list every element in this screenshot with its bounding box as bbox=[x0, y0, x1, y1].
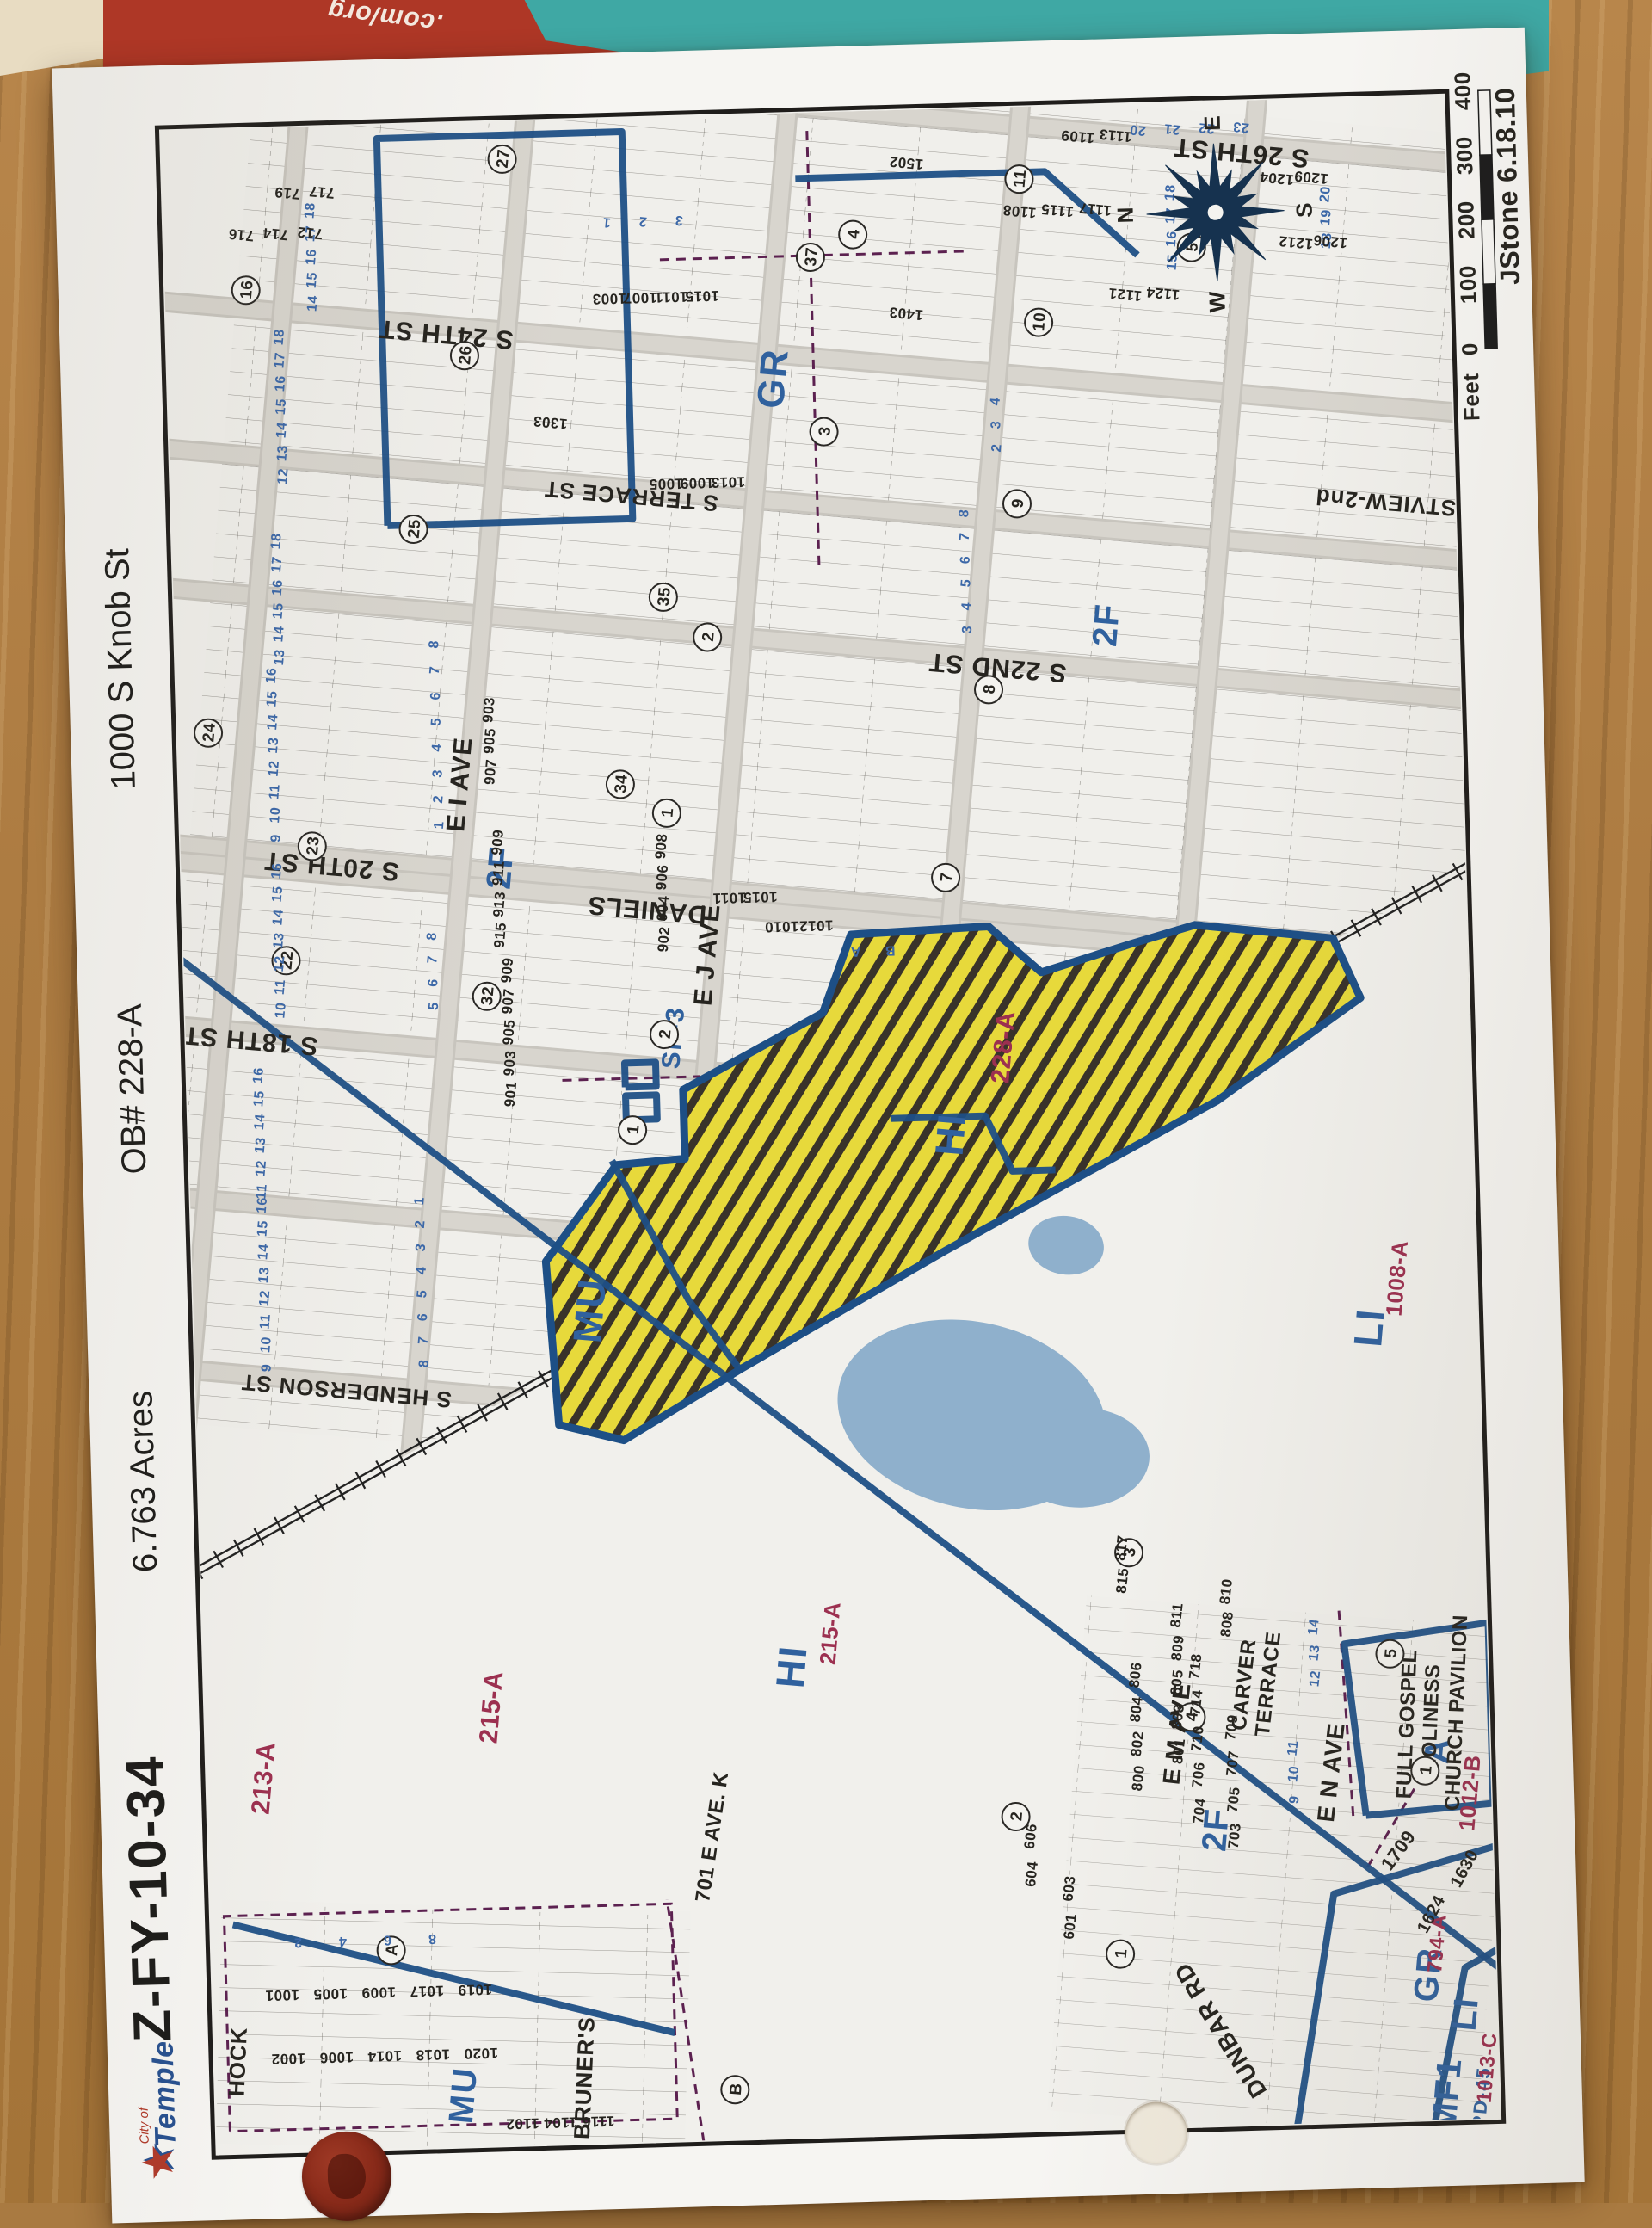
house-number: 1013 bbox=[711, 473, 745, 491]
lot-number: 2 bbox=[413, 1219, 428, 1229]
house-number: 901 bbox=[502, 1081, 520, 1108]
lot-number: 7 bbox=[425, 955, 441, 965]
house-number: 1108 bbox=[1002, 201, 1038, 221]
house-number: 811 bbox=[1168, 1602, 1187, 1628]
lot-number: 13 bbox=[271, 932, 287, 949]
block-number: 1 bbox=[658, 807, 677, 818]
house-number: 604 bbox=[1022, 1861, 1041, 1888]
lot-number: 9 bbox=[268, 834, 284, 843]
lot-number: 15 bbox=[251, 1090, 268, 1108]
block-number: 3 bbox=[816, 426, 835, 437]
house-number: 915 bbox=[491, 922, 509, 948]
lot-number: 16 bbox=[263, 667, 280, 684]
zoning-label: MU bbox=[442, 2065, 484, 2126]
lot-number: 14 bbox=[270, 909, 287, 926]
house-number: 1018 bbox=[416, 2046, 450, 2063]
house-number: 1006 bbox=[319, 2049, 354, 2066]
house-number: 1204 bbox=[1259, 169, 1294, 188]
lot-number: 11 bbox=[273, 978, 288, 995]
block-number: B bbox=[727, 2083, 746, 2096]
house-number: 902 bbox=[655, 926, 673, 953]
scale-tick: 200 bbox=[1452, 201, 1479, 240]
compass-letter: E bbox=[1199, 115, 1224, 132]
lot-number: 14 bbox=[252, 1114, 268, 1131]
house-number: 905 bbox=[480, 727, 498, 754]
lot-number: 16 bbox=[269, 862, 286, 879]
lot-number: 7 bbox=[428, 665, 443, 675]
lot-number: 10 bbox=[268, 806, 284, 824]
house-number: 909 bbox=[498, 957, 516, 984]
lot-number: 12 bbox=[272, 955, 288, 972]
house-number: 704 bbox=[1190, 1797, 1209, 1824]
block-number: 4 bbox=[845, 229, 864, 240]
tract-label: 215-A bbox=[815, 1601, 846, 1666]
house-number: 1212 bbox=[1278, 232, 1313, 252]
house-number: 909 bbox=[489, 829, 507, 855]
lot-number: 8 bbox=[427, 639, 442, 649]
house-number: 903 bbox=[501, 1050, 519, 1077]
lot-number: 13 bbox=[266, 737, 282, 754]
house-number: 714 bbox=[262, 225, 289, 244]
lot-number: 9 bbox=[259, 1363, 274, 1373]
street-label: HOCK bbox=[224, 2027, 252, 2097]
house-number: 1113 bbox=[1099, 126, 1133, 145]
map-landscape: ★ City of Temple Z-FY-10-34 6.763 Acres … bbox=[52, 34, 1578, 2213]
scale-tick: 100 bbox=[1454, 265, 1481, 305]
lot-number: 11 bbox=[257, 1313, 273, 1330]
lot-number: 13 bbox=[274, 445, 291, 462]
house-number: 800 bbox=[1129, 1764, 1148, 1792]
lot-number: 12 bbox=[1307, 1669, 1323, 1688]
house-number: 1303 bbox=[533, 413, 568, 433]
house-number: 1009 bbox=[361, 1984, 396, 2001]
house-number: 716 bbox=[227, 225, 255, 244]
house-number: 707 bbox=[1223, 1750, 1242, 1777]
red-paper-text: .com/org bbox=[325, 0, 444, 38]
house-number: 907 bbox=[499, 988, 517, 1015]
house-number: 1109 bbox=[1060, 127, 1095, 146]
lot-number: 14 bbox=[274, 422, 291, 439]
lot-number: 12 bbox=[275, 468, 292, 485]
block-number: 5 bbox=[1382, 1648, 1401, 1659]
zoning-label: HI bbox=[767, 1643, 816, 1689]
lot-number: 15 bbox=[264, 690, 280, 707]
house-number: 1005 bbox=[313, 1985, 348, 2003]
lot-number: 16 bbox=[1164, 231, 1180, 248]
lot-number: 16 bbox=[270, 579, 287, 596]
house-number: 908 bbox=[652, 833, 670, 860]
lot-number: 16 bbox=[273, 375, 289, 392]
house-number: 1010 bbox=[764, 918, 798, 935]
lot-number: 14 bbox=[305, 295, 321, 312]
compass-letter: W bbox=[1204, 291, 1230, 313]
lot-number: 13 bbox=[253, 1137, 269, 1154]
block-number: 16 bbox=[237, 280, 257, 300]
house-number: 718 bbox=[1186, 1652, 1205, 1680]
house-number: 719 bbox=[274, 184, 301, 203]
lot-number: 15 bbox=[305, 272, 321, 289]
lot-number: 19 bbox=[1318, 209, 1335, 226]
map-content: S HENDERSON STS 18TH STS 20TH STS 22ND S… bbox=[102, 34, 1577, 2180]
zoning-label: HI bbox=[926, 1111, 974, 1157]
lot-number: 14 bbox=[1306, 1618, 1322, 1636]
house-number: 1206 bbox=[1312, 231, 1347, 251]
house-number: 706 bbox=[1189, 1761, 1208, 1788]
lot-number: 1 bbox=[602, 214, 612, 230]
lot-number: 10 bbox=[273, 1002, 289, 1019]
house-number: 606 bbox=[1021, 1823, 1040, 1850]
lot-number: 14 bbox=[256, 1244, 272, 1261]
railroad-tick bbox=[152, 1584, 162, 1602]
block-number: 7 bbox=[938, 872, 957, 883]
house-number: 717 bbox=[308, 182, 336, 201]
house-number: 1014 bbox=[367, 2047, 402, 2064]
house-number: 817 bbox=[1112, 1534, 1131, 1562]
block-number: 34 bbox=[612, 774, 632, 794]
zoning-label: MU bbox=[564, 1276, 614, 1345]
block-number: 23 bbox=[304, 836, 324, 856]
zoning-map: S HENDERSON STS 18TH STS 20TH STS 22ND S… bbox=[52, 34, 1578, 2213]
house-number: 911 bbox=[490, 861, 508, 886]
zoning-label: 2F bbox=[1086, 602, 1127, 648]
block-number: 11 bbox=[1011, 169, 1031, 188]
lot-number: 12 bbox=[267, 760, 283, 777]
house-number: 815 bbox=[1113, 1567, 1131, 1595]
lot-number: 6 bbox=[428, 691, 444, 700]
lot-number: 1 bbox=[432, 820, 447, 830]
compass-letter: N bbox=[1112, 207, 1138, 224]
block-number: 26 bbox=[456, 345, 476, 366]
lot-number: 10 bbox=[258, 1336, 274, 1354]
lot-number: 18 bbox=[302, 202, 318, 219]
house-number: 806 bbox=[1125, 1661, 1144, 1688]
lot-number: 11 bbox=[267, 783, 282, 799]
lot-number: 2 bbox=[989, 443, 1005, 453]
lot-number: 6 bbox=[958, 555, 973, 565]
zoning-label: GR bbox=[749, 347, 797, 410]
lot-number: 2 bbox=[293, 1935, 302, 1949]
map-sheet: ★ City of Temple Z-FY-10-34 6.763 Acres … bbox=[52, 28, 1584, 2224]
house-number: 1002 bbox=[271, 2050, 305, 2067]
house-number: 803 bbox=[1168, 1703, 1187, 1731]
lot-number: 5 bbox=[959, 578, 974, 588]
lot-number: 15 bbox=[255, 1220, 271, 1237]
lot-number: 15 bbox=[270, 886, 287, 903]
scale-tick: 400 bbox=[1449, 71, 1476, 111]
house-number: 1502 bbox=[888, 153, 923, 173]
house-number: 714 bbox=[1187, 1688, 1205, 1716]
lot-number: 3 bbox=[430, 768, 446, 778]
scale-tick: 300 bbox=[1451, 136, 1477, 176]
lot-number: 12 bbox=[257, 1290, 274, 1307]
lot-number: 8 bbox=[957, 509, 972, 518]
credit-label: JStone 6.18.10 bbox=[1489, 87, 1526, 285]
lot-number: 7 bbox=[958, 532, 973, 541]
lot-number: A bbox=[850, 944, 861, 959]
house-number: 1104 bbox=[544, 2114, 577, 2131]
lot-number: 13 bbox=[272, 649, 288, 666]
house-number: 1015 bbox=[743, 888, 777, 905]
house-number: 709 bbox=[1222, 1713, 1241, 1741]
house-number: 1403 bbox=[888, 304, 923, 324]
block-number: 1 bbox=[1113, 1948, 1131, 1960]
lot-number: 17 bbox=[272, 352, 288, 369]
house-number: 906 bbox=[653, 864, 671, 891]
block-number: 1 bbox=[625, 1124, 644, 1135]
house-number: 1115 bbox=[1040, 201, 1075, 219]
lot-number: 3 bbox=[960, 625, 976, 634]
house-number: 1011 bbox=[654, 288, 687, 306]
house-number: 1012 bbox=[798, 917, 833, 935]
zoning-label: LI bbox=[1445, 1995, 1486, 2032]
lot-number: 2 bbox=[638, 213, 648, 229]
house-number: 1011 bbox=[712, 889, 746, 906]
lot-number: 6 bbox=[416, 1312, 431, 1322]
house-number: 1102 bbox=[506, 2115, 539, 2132]
house-number: 907 bbox=[481, 758, 499, 785]
house-number: 903 bbox=[479, 696, 497, 723]
lot-number: 18 bbox=[268, 533, 285, 550]
lot-number: B bbox=[885, 943, 896, 958]
lot-number: 15 bbox=[274, 398, 290, 416]
lot-number: 20 bbox=[1317, 186, 1334, 203]
house-number: 1117 bbox=[1078, 200, 1113, 219]
lot-number: 7 bbox=[416, 1336, 432, 1345]
house-number: 1116 bbox=[582, 2113, 614, 2130]
house-number: 808 bbox=[1217, 1610, 1236, 1638]
lot-number: 8 bbox=[424, 932, 440, 941]
house-number: 710 bbox=[1188, 1725, 1207, 1752]
block-number: 9 bbox=[1009, 497, 1028, 509]
lot-number: 3 bbox=[414, 1243, 429, 1252]
scale-units: Feet bbox=[1458, 373, 1485, 421]
lot-number: 8 bbox=[416, 1359, 432, 1368]
house-number: 603 bbox=[1059, 1875, 1078, 1903]
block-number: 25 bbox=[405, 518, 425, 539]
house-number: 1017 bbox=[410, 1983, 444, 2000]
lot-number: 3 bbox=[989, 420, 1004, 429]
house-number: 712 bbox=[296, 224, 324, 243]
house-number: 1019 bbox=[458, 1981, 492, 1998]
lot-number: 13 bbox=[1306, 1644, 1322, 1662]
lot-number: 16 bbox=[304, 249, 320, 266]
house-number: 1209 bbox=[1293, 168, 1328, 188]
house-number: 1001 bbox=[265, 1986, 299, 2003]
lot-number: 13 bbox=[256, 1267, 273, 1284]
house-number: 703 bbox=[1225, 1822, 1244, 1849]
lot-number: 6 bbox=[383, 1932, 391, 1947]
lot-number: 4 bbox=[959, 602, 975, 611]
house-number: 1007 bbox=[623, 289, 657, 306]
lot-number: 4 bbox=[988, 397, 1003, 406]
lot-number: 5 bbox=[415, 1289, 430, 1299]
lot-number: 16 bbox=[250, 1067, 267, 1084]
house-number: 1020 bbox=[464, 2045, 498, 2062]
house-number: 801 bbox=[1169, 1737, 1188, 1765]
house-number: 1015 bbox=[685, 287, 719, 305]
house-number: 905 bbox=[500, 1019, 518, 1046]
block-number: 27 bbox=[494, 148, 514, 169]
lot-number: 9 bbox=[1287, 1795, 1303, 1805]
block-number: 10 bbox=[1030, 312, 1050, 332]
house-number: 802 bbox=[1128, 1730, 1147, 1757]
house-number: 809 bbox=[1168, 1634, 1187, 1662]
house-number: 1121 bbox=[1107, 285, 1143, 305]
lot-number: 4 bbox=[414, 1266, 429, 1275]
block-number: 2 bbox=[1008, 1811, 1026, 1822]
lot-number: 15 bbox=[270, 602, 287, 620]
lot-number: 12 bbox=[253, 1160, 269, 1177]
lot-number: 17 bbox=[269, 556, 286, 573]
lot-number: 2 bbox=[431, 794, 447, 804]
house-number: 904 bbox=[654, 895, 672, 922]
block-number: 1 bbox=[1417, 1765, 1436, 1776]
lot-number: 8 bbox=[428, 1931, 436, 1946]
house-number: 601 bbox=[1061, 1913, 1080, 1941]
lot-number: 1 bbox=[412, 1196, 428, 1206]
lot-number: 10 bbox=[1285, 1765, 1302, 1783]
block-number: 32 bbox=[478, 985, 498, 1006]
house-number: 1009 bbox=[680, 474, 714, 491]
block-number: 35 bbox=[655, 586, 675, 607]
scale-segment bbox=[1483, 284, 1497, 349]
lot-number: 11 bbox=[254, 1183, 269, 1200]
block-number: 24 bbox=[200, 722, 219, 743]
house-number: 1005 bbox=[649, 475, 683, 492]
house-number: 913 bbox=[490, 891, 509, 917]
lot-number: 5 bbox=[428, 717, 444, 726]
compass-letter: S bbox=[1291, 202, 1316, 219]
house-number: 810 bbox=[1217, 1577, 1236, 1605]
lot-number: 4 bbox=[338, 1934, 347, 1948]
house-number: 804 bbox=[1127, 1695, 1146, 1723]
lot-number: 14 bbox=[271, 626, 287, 643]
lot-number: 18 bbox=[272, 329, 288, 346]
lot-number: 3 bbox=[675, 213, 684, 228]
house-number: 705 bbox=[1224, 1786, 1243, 1813]
house-number: 1003 bbox=[592, 290, 626, 307]
lot-number: 4 bbox=[429, 743, 445, 752]
house-number: 1124 bbox=[1145, 284, 1180, 304]
lot-number: 11 bbox=[1285, 1740, 1302, 1757]
lot-number: 14 bbox=[265, 713, 281, 731]
block-number: 2 bbox=[656, 1028, 675, 1040]
block-number: 2 bbox=[700, 631, 718, 642]
lot-number: 6 bbox=[426, 978, 441, 988]
railroad-tick bbox=[173, 1573, 182, 1590]
lot-number: 23 bbox=[1232, 119, 1249, 135]
lot-number: 5 bbox=[427, 1002, 442, 1011]
lot-number: 21 bbox=[1163, 120, 1180, 137]
block-number: 8 bbox=[981, 683, 1000, 694]
house-number: 805 bbox=[1168, 1669, 1187, 1696]
scale-tick: 0 bbox=[1457, 343, 1482, 356]
block-number: 37 bbox=[802, 246, 822, 267]
